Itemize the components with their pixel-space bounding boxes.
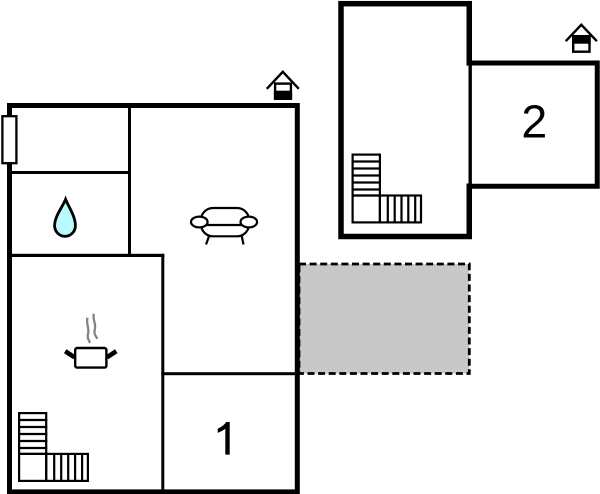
- svg-text:2: 2: [521, 95, 547, 147]
